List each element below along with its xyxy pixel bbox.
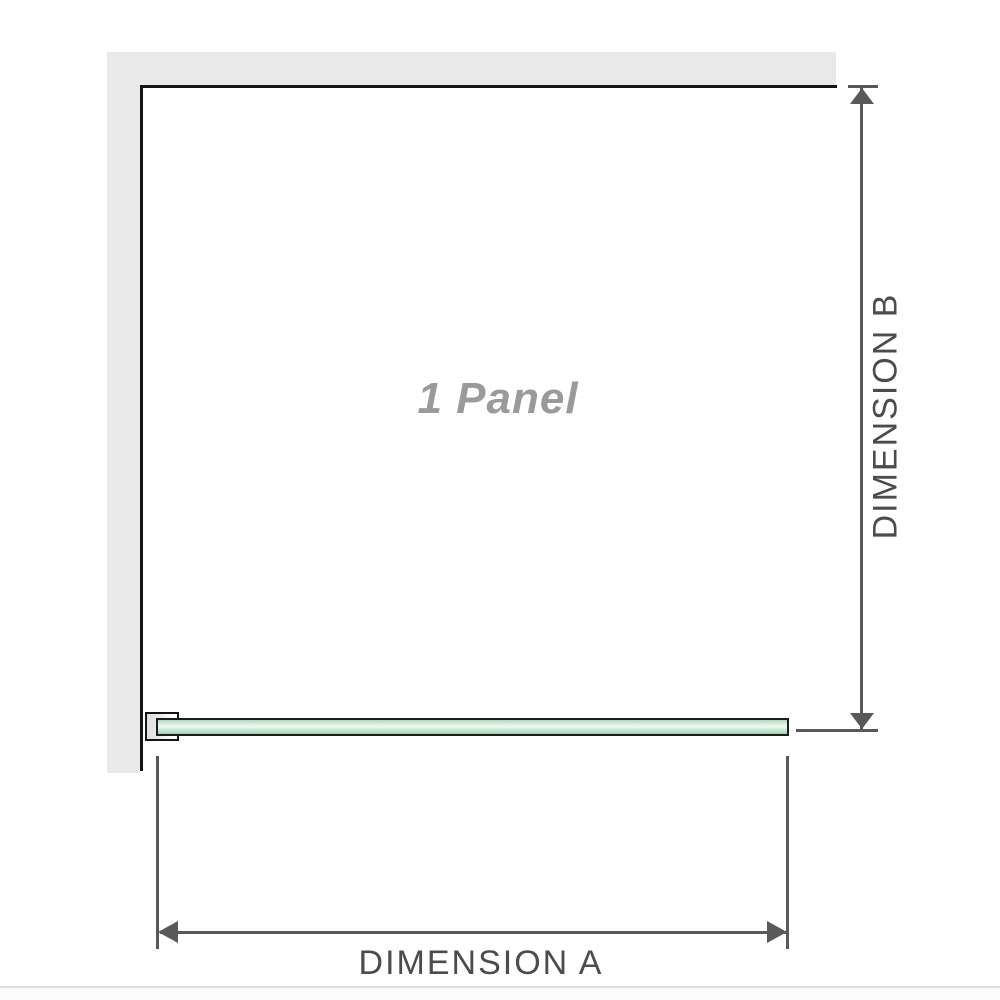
dimension-b-label: DIMENSION B bbox=[867, 293, 906, 540]
top-wall-inner-edge bbox=[140, 85, 837, 88]
glass-panel bbox=[156, 718, 789, 736]
dimension-b-line bbox=[860, 88, 863, 729]
dimension-a-label: DIMENSION A bbox=[359, 944, 604, 983]
top-wall bbox=[107, 52, 836, 85]
shower-panel-dimension-diagram: 1 Panel DIMENSION B DIMENSION A bbox=[0, 0, 1000, 1000]
arrow-down-icon bbox=[850, 713, 874, 729]
footer-area bbox=[0, 988, 1000, 1000]
left-wall-inner-edge bbox=[140, 85, 143, 771]
arrow-left-icon bbox=[158, 921, 178, 943]
dimension-a-line bbox=[160, 931, 786, 934]
arrow-up-icon bbox=[850, 88, 874, 104]
left-wall bbox=[107, 52, 140, 773]
panel-count-label: 1 Panel bbox=[417, 374, 578, 424]
dimension-b-bottom-tick bbox=[796, 729, 878, 732]
arrow-right-icon bbox=[767, 921, 787, 943]
